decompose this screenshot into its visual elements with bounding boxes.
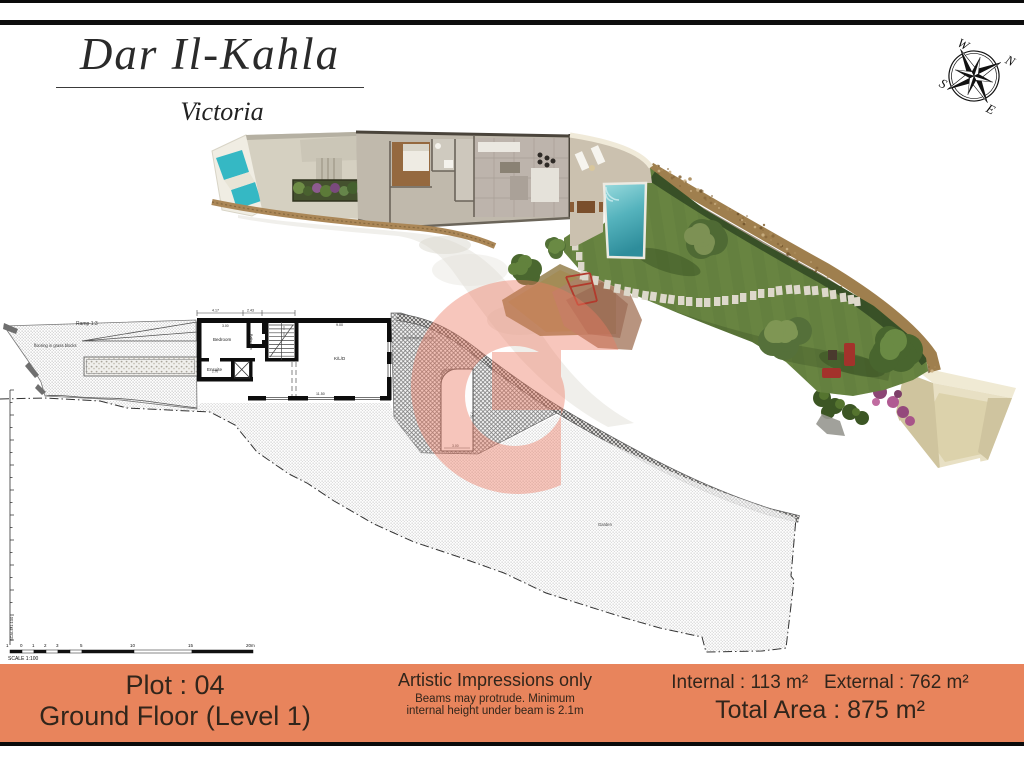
svg-text:SCALE 1:100: SCALE 1:100 — [9, 616, 14, 641]
svg-text:15: 15 — [188, 643, 194, 648]
svg-text:1: 1 — [6, 643, 9, 648]
svg-text:2: 2 — [44, 643, 47, 648]
svg-text:E: E — [983, 100, 998, 117]
svg-text:1: 1 — [32, 643, 35, 648]
svg-text:20m: 20m — [246, 643, 255, 648]
svg-text:2.70: 2.70 — [212, 370, 218, 374]
svg-text:11.50: 11.50 — [316, 392, 325, 396]
svg-text:3.00: 3.00 — [222, 324, 229, 328]
svg-text:SCALE 1:100: SCALE 1:100 — [8, 656, 39, 662]
svg-text:2.43: 2.43 — [247, 309, 254, 313]
svg-text:7.50: 7.50 — [470, 412, 474, 419]
svg-text:N: N — [1002, 51, 1019, 69]
svg-text:Garden: Garden — [598, 522, 613, 527]
svg-text:3: 3 — [56, 643, 59, 648]
svg-text:Bedroom: Bedroom — [213, 337, 232, 342]
svg-text:10: 10 — [130, 643, 136, 648]
svg-text:Bathroom: Bathroom — [249, 334, 253, 350]
svg-text:9.00: 9.00 — [336, 323, 343, 327]
svg-text:0: 0 — [20, 643, 23, 648]
svg-text:5: 5 — [80, 643, 83, 648]
svg-text:Ramp 1:3: Ramp 1:3 — [76, 321, 98, 327]
svg-text:K/L/D: K/L/D — [334, 356, 346, 361]
svg-text:4.17: 4.17 — [212, 309, 219, 313]
svg-text:flooring in grass blocks: flooring in grass blocks — [34, 343, 77, 348]
